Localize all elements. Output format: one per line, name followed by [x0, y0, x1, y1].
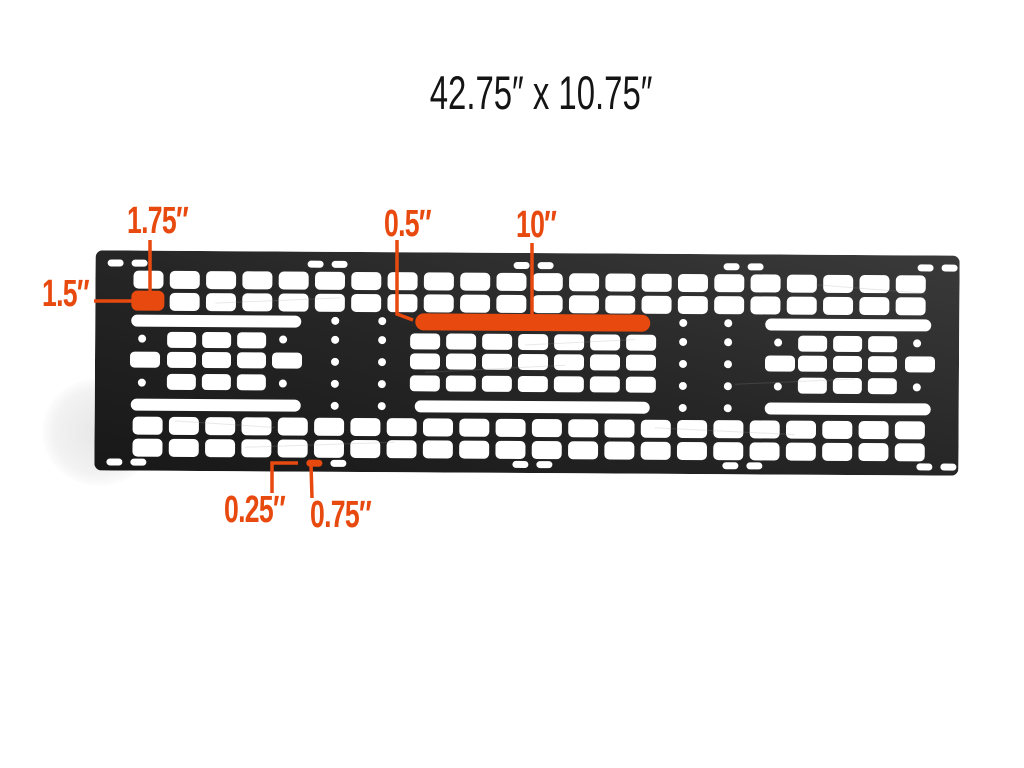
molle-slot — [533, 273, 563, 291]
dim-label-1-75: 1.75″ — [127, 202, 188, 240]
page-title: 42.75″ x 10.75″ — [0, 69, 1024, 116]
molle-slot — [482, 376, 512, 392]
molle-slot — [279, 293, 309, 311]
bolt-hole — [331, 380, 339, 388]
molle-slot — [315, 272, 345, 290]
molle-slot — [714, 274, 744, 292]
molle-slot — [822, 421, 852, 439]
molle-slot — [206, 271, 236, 289]
molle-slot — [387, 418, 417, 436]
molle-slot — [387, 440, 417, 458]
mount-slot-top — [308, 261, 324, 268]
bolt-hole — [378, 336, 386, 344]
bolt-hole — [913, 383, 921, 391]
molle-slot — [822, 443, 852, 461]
molle-slot — [896, 275, 926, 293]
bolt-hole — [679, 382, 687, 390]
mount-slot-bottom — [106, 458, 122, 465]
molle-slot — [460, 295, 490, 313]
long-slot — [131, 399, 301, 412]
molle-slot — [532, 419, 562, 437]
molle-slot-wide — [765, 355, 795, 371]
molle-slot — [315, 294, 345, 312]
bolt-hole — [331, 317, 339, 325]
bolt-hole — [279, 379, 287, 387]
molle-slot — [859, 297, 889, 315]
molle-slot — [388, 272, 418, 290]
mount-slot-bottom — [916, 463, 932, 470]
mount-slot-bottom — [940, 464, 956, 471]
mount-slot-bottom — [722, 462, 738, 469]
dim-label-10: 10″ — [516, 206, 556, 244]
molle-slot — [569, 295, 599, 313]
molle-slot — [750, 442, 780, 460]
molle-slot — [626, 335, 656, 351]
bolt-hole — [774, 383, 782, 391]
molle-slot — [786, 443, 816, 461]
molle-slot — [237, 374, 266, 390]
molle-slot — [823, 275, 853, 293]
mount-slot-bottom — [746, 462, 762, 469]
highlight-slot-1-5in — [131, 291, 164, 311]
molle-slot — [604, 419, 634, 437]
molle-slot — [626, 355, 656, 371]
molle-slot — [314, 418, 344, 436]
molle-slot — [202, 374, 231, 390]
long-slot — [765, 402, 931, 415]
molle-slot — [868, 336, 897, 352]
molle-slot — [205, 439, 235, 457]
molle-slot — [496, 419, 526, 437]
bolt-hole — [138, 335, 146, 343]
molle-slot — [678, 296, 708, 314]
molle-slot — [350, 418, 380, 436]
molle-slot — [590, 334, 620, 350]
mount-slot-bottom — [130, 459, 146, 466]
molle-slot — [170, 271, 200, 289]
bolt-hole — [679, 319, 687, 327]
molle-slot — [895, 443, 925, 461]
molle-slot-wide — [130, 352, 160, 368]
molle-slot — [132, 439, 162, 457]
molle-panel-image — [94, 250, 959, 475]
molle-slot — [518, 334, 548, 350]
molle-slot — [518, 376, 548, 392]
molle-slot — [237, 352, 266, 368]
molle-slot — [424, 294, 454, 312]
molle-slot — [590, 376, 620, 392]
molle-slot — [482, 354, 512, 370]
molle-slot — [278, 439, 308, 457]
molle-slot — [798, 356, 827, 372]
molle-slot — [751, 274, 781, 292]
highlight-long-slot-10in — [415, 313, 650, 331]
molle-slot — [859, 421, 889, 439]
bolt-hole — [724, 338, 732, 346]
molle-slot — [605, 295, 635, 313]
molle-slot — [167, 332, 196, 348]
bolt-hole — [378, 402, 386, 410]
molle-slot — [237, 332, 266, 348]
mount-slot-top — [918, 264, 934, 271]
molle-slot — [642, 296, 672, 314]
mount-slot-top — [132, 260, 148, 267]
molle-slot-wide — [272, 352, 302, 368]
long-slot — [131, 315, 301, 328]
molle-slot — [482, 334, 512, 350]
mount-slot-top — [942, 265, 958, 272]
bolt-hole — [378, 358, 386, 366]
molle-slot — [242, 271, 272, 289]
mount-slot-top — [332, 261, 348, 268]
mount-slot-bottom — [536, 461, 552, 468]
bolt-hole — [679, 338, 687, 346]
molle-slot — [868, 378, 897, 394]
molle-slot — [496, 295, 526, 313]
molle-slot — [410, 333, 440, 349]
molle-slot — [554, 354, 584, 370]
dimensions-title-text: 42.75″ x 10.75″ — [430, 69, 653, 116]
bolt-hole — [378, 317, 386, 325]
molle-slot — [895, 421, 925, 439]
molle-slot — [554, 376, 584, 392]
molle-slot — [626, 377, 656, 393]
molle-slot — [533, 295, 563, 313]
molle-slot — [496, 273, 526, 291]
molle-slot — [446, 334, 476, 350]
bolt-hole — [724, 404, 732, 412]
molle-slot — [787, 297, 817, 315]
bolt-hole — [679, 360, 687, 368]
molle-slot — [642, 274, 672, 292]
molle-slot — [424, 272, 454, 290]
molle-slot — [133, 271, 163, 289]
molle-slot — [713, 420, 743, 438]
molle-slot — [714, 296, 744, 314]
molle-slot — [833, 356, 862, 372]
molle-slot — [678, 274, 708, 292]
molle-slot — [677, 442, 707, 460]
dim-label-0-25: 0.25″ — [224, 491, 285, 529]
molle-slot — [495, 441, 525, 459]
molle-slot — [568, 419, 598, 437]
mount-slot-top — [514, 262, 530, 269]
dim-label-1-5: 1.5″ — [42, 275, 89, 313]
molle-slot — [410, 353, 440, 369]
molle-slot — [202, 332, 231, 348]
dim-label-0-75: 0.75″ — [310, 496, 371, 534]
molle-slot — [351, 272, 381, 290]
molle-slot — [868, 356, 897, 372]
molle-slot — [423, 418, 453, 436]
bolt-hole — [331, 358, 339, 366]
molle-slot — [133, 417, 163, 435]
bolt-hole — [331, 336, 339, 344]
molle-slot — [278, 417, 308, 435]
molle-panel-svg — [94, 250, 959, 475]
molle-slot — [569, 273, 599, 291]
mount-slot-top — [108, 259, 124, 266]
molle-slot — [169, 417, 199, 435]
molle-slot — [169, 439, 199, 457]
dim-label-0-5: 0.5″ — [384, 205, 431, 243]
molle-slot — [242, 293, 272, 311]
molle-slot — [532, 441, 562, 459]
bolt-hole — [724, 319, 732, 327]
molle-slot — [833, 378, 862, 394]
molle-slot — [798, 336, 827, 352]
bolt-hole — [138, 379, 146, 387]
molle-slot — [205, 417, 235, 435]
molle-slot-wide — [905, 356, 935, 372]
mount-slot-top — [724, 263, 740, 270]
mount-slot-bottom — [330, 460, 346, 467]
molle-slot — [590, 354, 620, 370]
molle-slot — [167, 374, 196, 390]
bolt-hole — [913, 339, 921, 347]
bolt-hole — [724, 382, 732, 390]
molle-slot — [459, 441, 489, 459]
bolt-hole — [724, 360, 732, 368]
molle-slot — [641, 442, 671, 460]
molle-slot — [387, 294, 417, 312]
molle-slot — [713, 442, 743, 460]
molle-slot — [605, 273, 635, 291]
molle-slot — [167, 352, 196, 368]
molle-slot — [750, 296, 780, 314]
mount-slot-top — [538, 262, 554, 269]
molle-slot — [568, 441, 598, 459]
molle-slot — [314, 440, 344, 458]
molle-slot — [787, 275, 817, 293]
molle-slot — [241, 439, 271, 457]
molle-slot — [170, 293, 200, 311]
molle-slot — [279, 271, 309, 289]
bolt-hole — [331, 402, 339, 410]
bolt-hole — [679, 404, 687, 412]
molle-slot — [750, 420, 780, 438]
mount-slot-top — [748, 263, 764, 270]
molle-slot — [786, 421, 816, 439]
molle-slot — [351, 294, 381, 312]
molle-slot — [459, 419, 489, 437]
molle-slot — [423, 440, 453, 458]
molle-slot — [833, 336, 862, 352]
long-slot — [765, 318, 931, 331]
bolt-hole — [279, 335, 287, 343]
bolt-hole — [378, 380, 386, 388]
mount-slot-bottom — [512, 461, 528, 468]
molle-slot — [446, 354, 476, 370]
product-dimension-diagram: 42.75″ x 10.75″ 1.75″ 1.5″ 0.5″ 10″ 0.25… — [0, 0, 1024, 768]
molle-slot — [446, 376, 476, 392]
molle-slot — [823, 297, 853, 315]
highlight-mount-slot-0-75in — [306, 460, 322, 467]
molle-slot — [858, 443, 888, 461]
long-slot — [415, 400, 650, 413]
molle-slot — [410, 375, 440, 391]
molle-slot — [202, 352, 231, 368]
bolt-hole — [774, 339, 782, 347]
molle-slot — [896, 297, 926, 315]
molle-slot — [604, 441, 634, 459]
molle-slot — [460, 273, 490, 291]
